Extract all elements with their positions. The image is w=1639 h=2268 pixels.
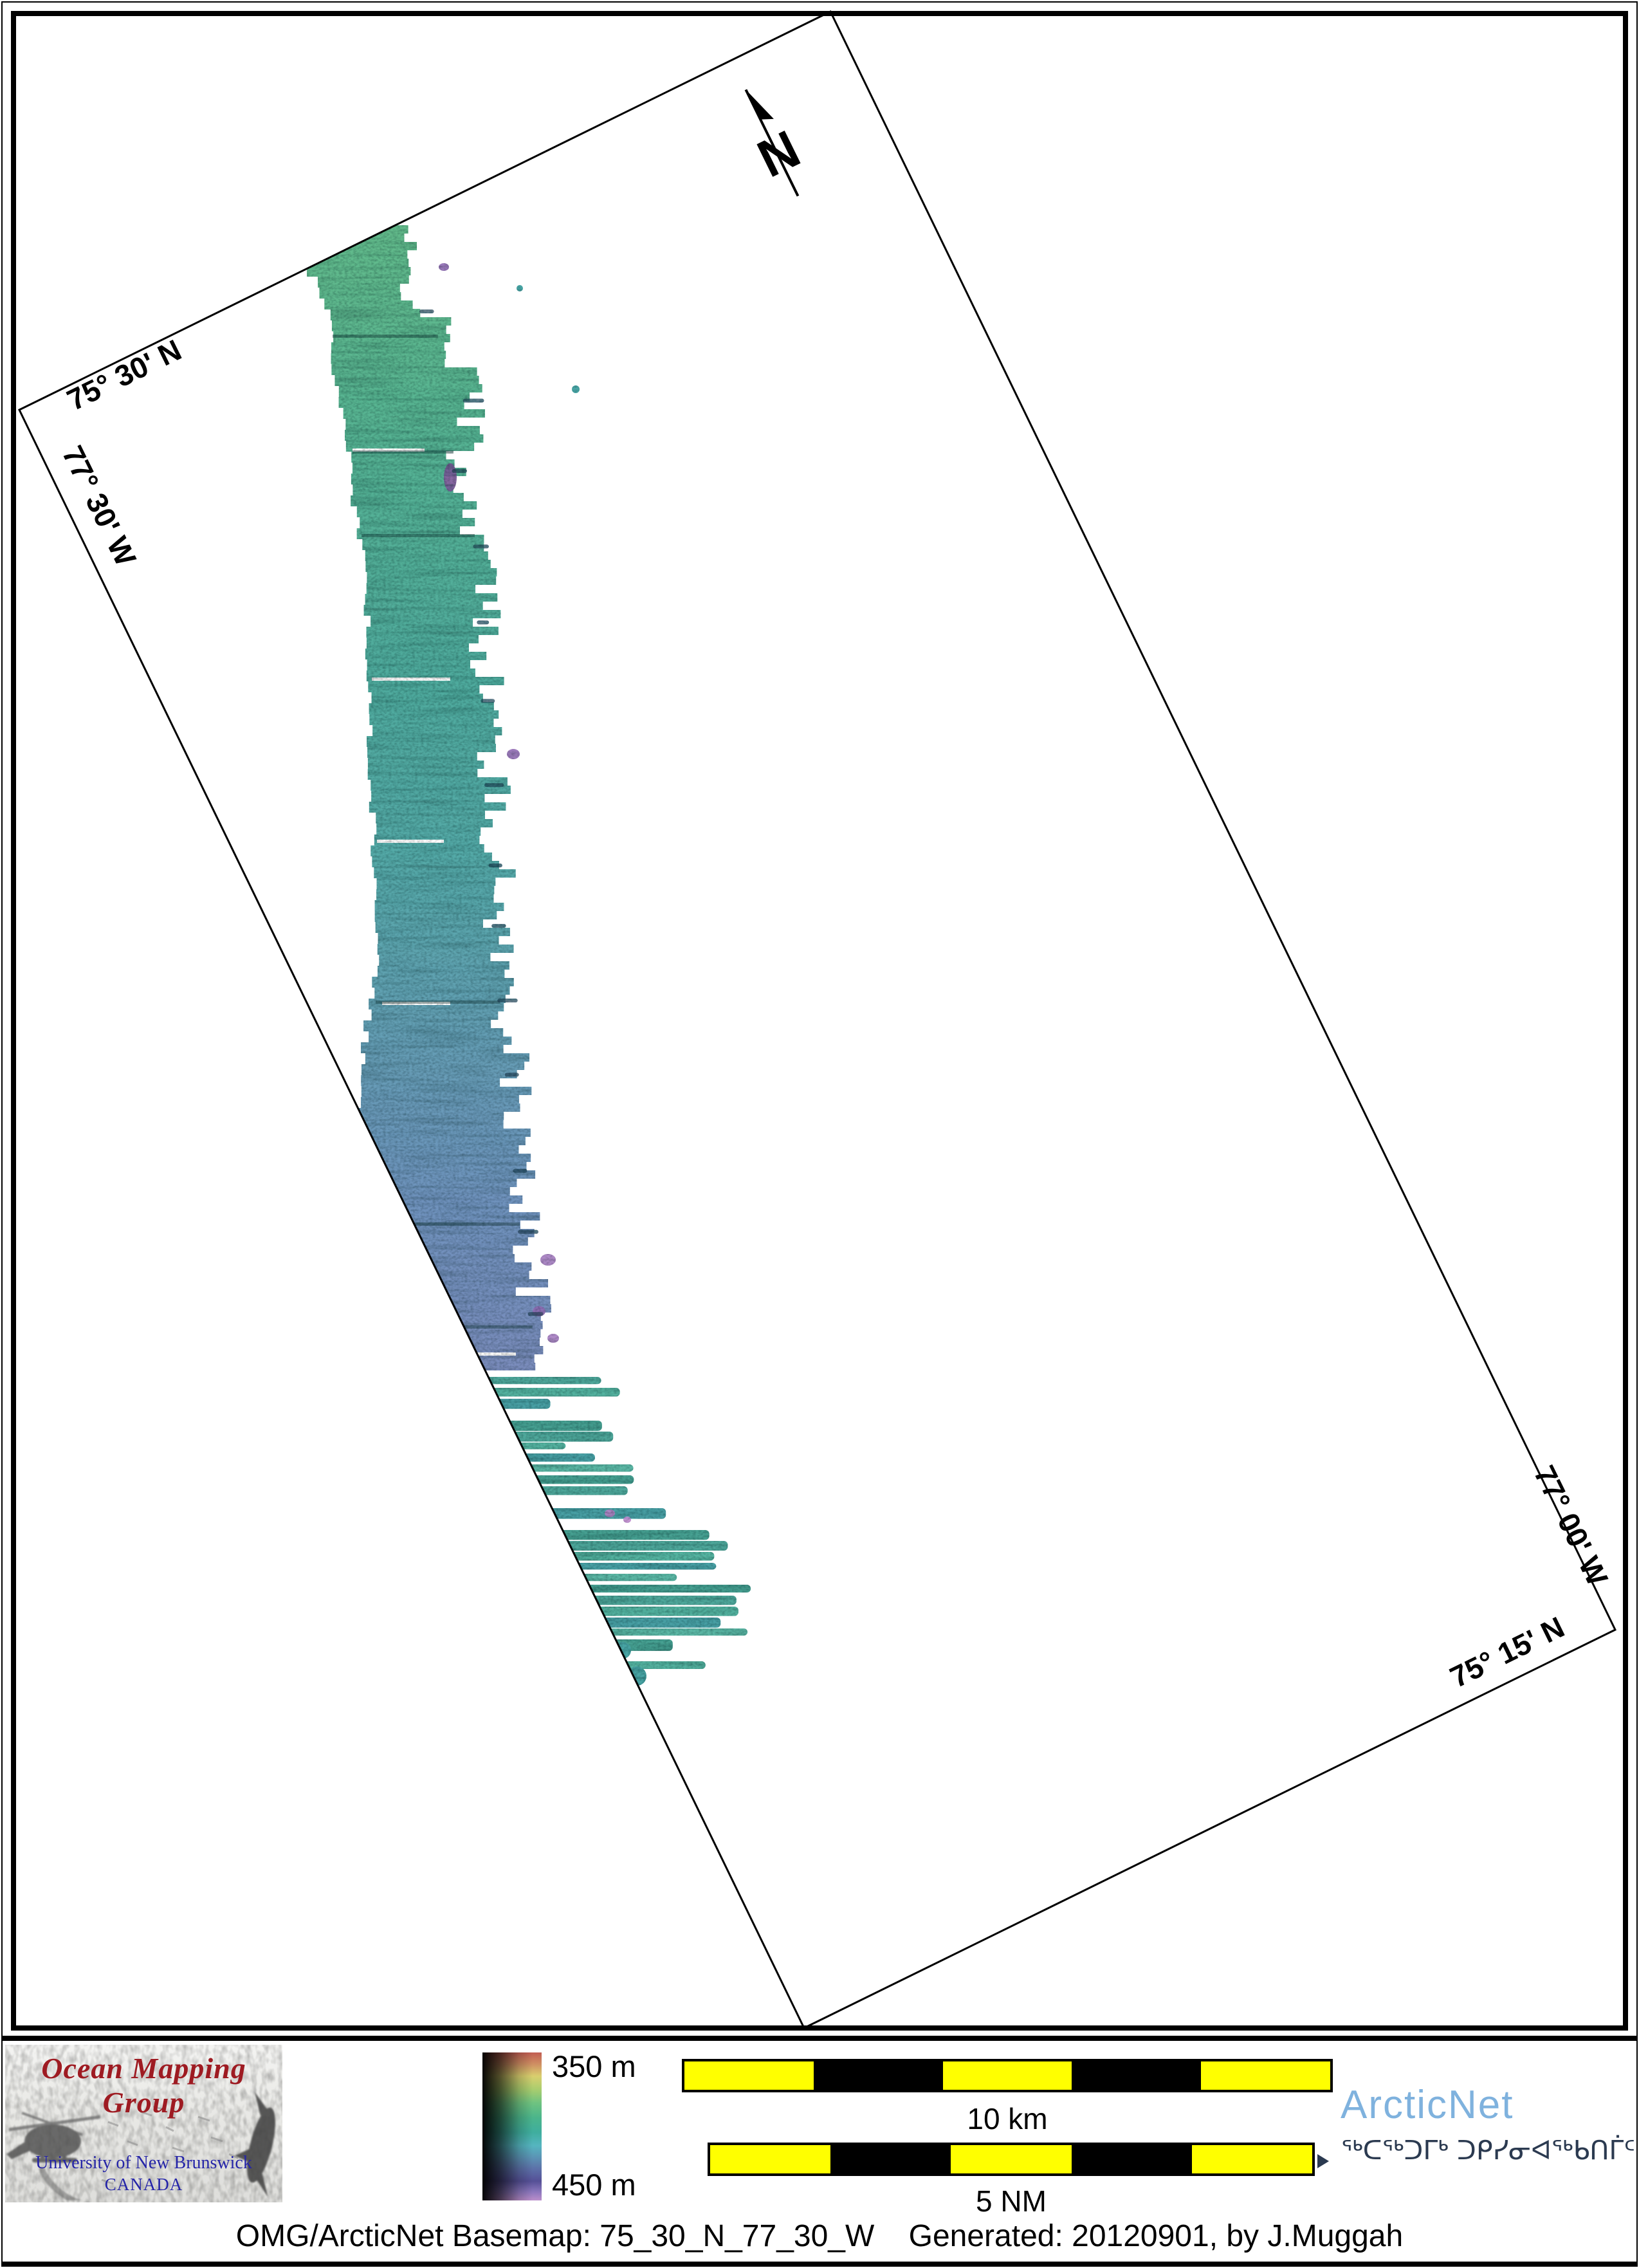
- scalebar-segment: [830, 2145, 951, 2173]
- colorbar-min-label: 350 m: [552, 2049, 636, 2084]
- scalebar-km: [682, 2059, 1333, 2092]
- omg-subtitle-university: University of New Brunswick: [5, 2153, 282, 2173]
- scalebar-segment: [814, 2061, 943, 2090]
- syllabics-pointer-icon: [1317, 2154, 1329, 2168]
- map-sheet: 75° 30' N 77° 30' W 77° 00' W 75° 15' N …: [0, 0, 1639, 2268]
- omg-title: Ocean Mapping Group: [5, 2051, 282, 2119]
- depth-colorbar: [482, 2052, 542, 2200]
- scalebar-nm: [708, 2143, 1315, 2176]
- omg-subtitle-country: CANADA: [5, 2175, 282, 2195]
- scalebar-segment: [951, 2145, 1071, 2173]
- legend-band: Ocean Mapping Group University of New Br…: [1, 2036, 1638, 2267]
- map-panel-border: [11, 11, 1628, 2031]
- scalebar-km-label: 10 km: [682, 2101, 1333, 2136]
- scalebar-segment: [1072, 2145, 1192, 2173]
- scalebar-segment: [710, 2145, 830, 2173]
- scalebar-segment: [684, 2061, 814, 2090]
- scalebar-segment: [943, 2061, 1072, 2090]
- scalebar-segment: [1192, 2145, 1312, 2173]
- colorbar-shading: [482, 2052, 542, 2200]
- scalebar-nm-label: 5 NM: [708, 2184, 1315, 2218]
- scalebar-segment: [1201, 2061, 1330, 2090]
- sheet-caption: OMG/ArcticNet Basemap: 75_30_N_77_30_W G…: [1, 2218, 1638, 2254]
- omg-logo: Ocean Mapping Group University of New Br…: [5, 2045, 282, 2202]
- colorbar-max-label: 450 m: [552, 2167, 636, 2202]
- arcticnet-inuktitut: ᖅᑕᖅᑐᒥᒃ ᑐᑭᓯᓂᐊᖅᑲᑎᒦᑦ: [1341, 2135, 1635, 2166]
- arcticnet-wordmark: ArcticNet: [1341, 2082, 1514, 2128]
- scalebar-segment: [1072, 2061, 1201, 2090]
